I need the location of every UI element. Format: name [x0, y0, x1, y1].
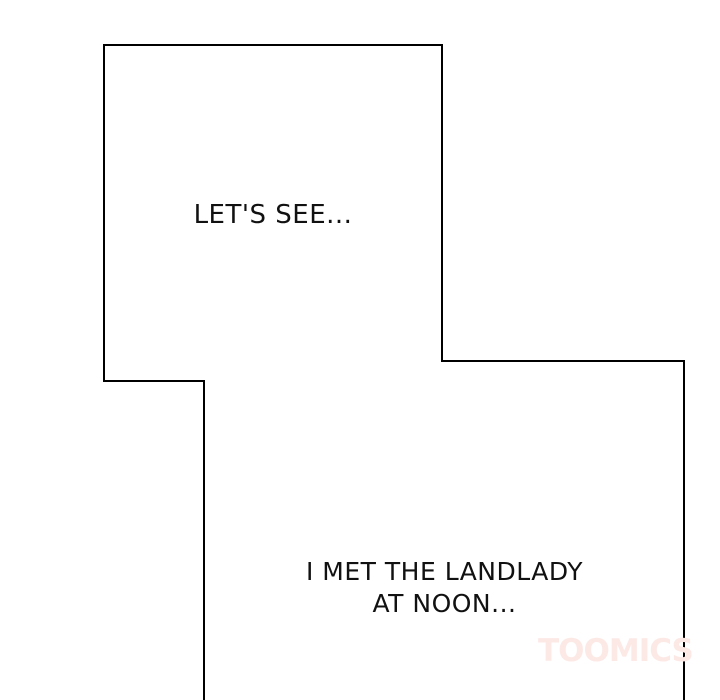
- comic-page: LET'S SEE... I MET THE LANDLADY AT NOON.…: [0, 0, 720, 700]
- dialogue-top-panel: LET'S SEE...: [104, 200, 442, 230]
- dialogue-line-2: AT NOON...: [204, 588, 685, 620]
- dialogue-line-1: I MET THE LANDLADY: [204, 556, 685, 588]
- toomics-watermark: TOOMICS: [538, 633, 686, 669]
- dialogue-bottom-panel: I MET THE LANDLADY AT NOON...: [204, 556, 685, 620]
